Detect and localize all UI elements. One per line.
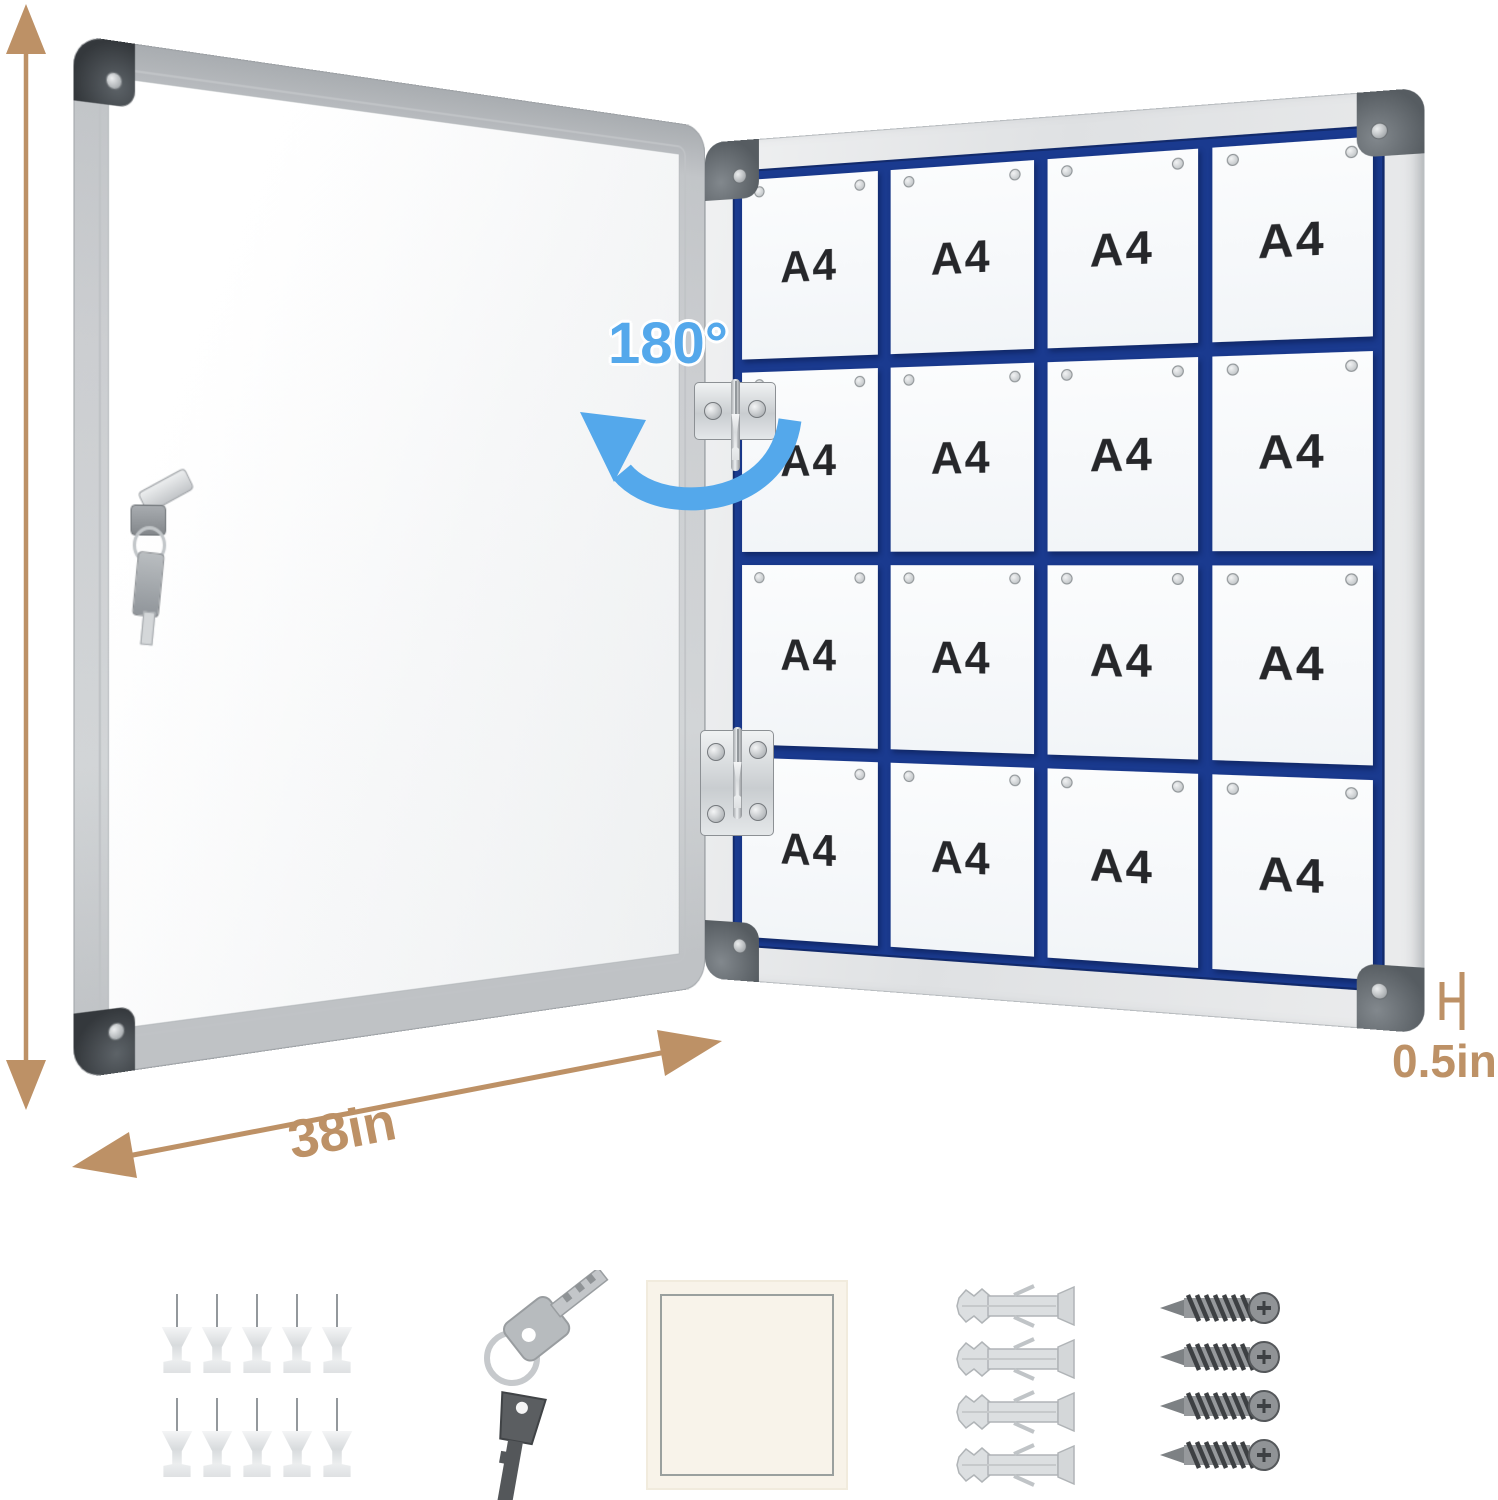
screw-icon <box>1371 982 1388 1000</box>
paper-pin-icon <box>1061 165 1073 178</box>
a4-label: A4 <box>1258 424 1326 481</box>
adhesive-pad <box>648 1282 846 1488</box>
a4-paper: A4 <box>890 763 1033 957</box>
paper-pin-icon <box>1172 157 1184 170</box>
a4-label: A4 <box>1090 838 1154 895</box>
adhesive-pad-inner <box>660 1294 834 1476</box>
paper-pin-icon <box>1061 776 1073 788</box>
a4-paper: A4 <box>742 565 878 749</box>
a4-grid: A4 A4 A4 A4 A4 A4 A4 A4 A4 A4 A4 A4 A4 A… <box>733 124 1385 992</box>
wall-anchor-icon <box>954 1443 1076 1487</box>
screw-icon <box>749 741 767 759</box>
key-tip <box>140 611 155 645</box>
paper-pin-icon <box>1009 573 1020 585</box>
a4-label: A4 <box>780 630 838 682</box>
wall-anchor-icon <box>954 1390 1076 1434</box>
paper-pin-icon <box>1061 369 1073 381</box>
paper-pin-icon <box>1227 573 1239 585</box>
screw-icon <box>733 168 747 184</box>
paper-pin-icon <box>903 176 914 188</box>
push-pin-icon <box>320 1396 354 1488</box>
paper-pin-icon <box>1172 573 1184 585</box>
paper-pin-icon <box>1172 780 1184 792</box>
a4-label: A4 <box>931 432 992 485</box>
screw-icon <box>106 71 123 91</box>
a4-paper: A4 <box>1213 136 1373 342</box>
paper-pin-icon <box>1061 573 1073 585</box>
paper-pin-icon <box>903 770 914 782</box>
paper-pin-icon <box>854 179 865 191</box>
paper-pin-icon <box>854 572 865 583</box>
a4-paper: A4 <box>1047 357 1198 551</box>
paper-pin-icon <box>1009 774 1020 786</box>
push-pin-icon <box>160 1396 194 1488</box>
rotation-label: 180° <box>608 310 728 377</box>
a4-paper: A4 <box>742 171 878 360</box>
keys-icon <box>448 1270 613 1500</box>
corner-cap <box>705 139 759 201</box>
paper-pin-icon <box>1227 363 1239 375</box>
screw-icon <box>1158 1288 1286 1328</box>
depth-label: 0.5in <box>1392 1034 1497 1088</box>
key-icon <box>132 551 165 618</box>
a4-paper: A4 <box>1047 768 1198 968</box>
product-diagram: 38in A4 A4 A4 A4 A4 A4 A4 A4 A4 A4 A4 A4 <box>0 0 1498 1500</box>
push-pin-icon <box>160 1292 194 1384</box>
paper-pin-icon <box>854 769 865 781</box>
screw-icon <box>707 805 725 823</box>
a4-paper: A4 <box>890 363 1033 552</box>
hinge-bottom <box>700 730 774 836</box>
screw-icon <box>1158 1435 1286 1475</box>
paper-pin-icon <box>1227 783 1239 796</box>
push-pin-icon <box>200 1396 234 1488</box>
a4-paper: A4 <box>1213 351 1373 551</box>
paper-pin-icon <box>1345 359 1358 372</box>
push-pins-group <box>160 1292 360 1492</box>
push-pin-icon <box>240 1292 274 1384</box>
rotation-arrow-icon <box>572 382 804 537</box>
screws-group <box>1158 1288 1286 1484</box>
a4-label: A4 <box>780 824 838 878</box>
wall-anchor-icon <box>954 1337 1076 1381</box>
a4-paper: A4 <box>1213 774 1373 980</box>
corner-cap <box>73 1006 135 1079</box>
a4-paper: A4 <box>1213 565 1373 765</box>
paper-pin-icon <box>1172 365 1184 377</box>
a4-label: A4 <box>1258 636 1326 693</box>
screw-icon <box>707 743 725 761</box>
paper-pin-icon <box>754 572 764 583</box>
a4-label: A4 <box>1090 428 1154 483</box>
corner-cap <box>73 35 135 108</box>
corner-cap <box>1357 963 1425 1033</box>
screw-icon <box>1158 1386 1286 1426</box>
a4-label: A4 <box>931 831 992 887</box>
paper-pin-icon <box>854 376 865 388</box>
corner-cap <box>705 920 759 982</box>
screw-icon <box>1158 1337 1286 1377</box>
hinge-pin <box>733 727 742 819</box>
push-pin-icon <box>200 1292 234 1384</box>
paper-pin-icon <box>903 374 914 386</box>
screw-icon <box>749 803 767 821</box>
paper-pin-icon <box>1227 153 1239 166</box>
a4-paper: A4 <box>890 160 1033 354</box>
push-pin-icon <box>320 1292 354 1384</box>
a4-label: A4 <box>780 239 838 293</box>
screw-icon <box>1371 122 1388 140</box>
push-pin-icon <box>280 1292 314 1384</box>
a4-paper: A4 <box>1047 565 1198 759</box>
screw-icon <box>733 938 747 954</box>
a4-paper: A4 <box>1047 149 1198 349</box>
a4-label: A4 <box>1258 846 1326 905</box>
corner-cap <box>1357 88 1425 158</box>
push-pin-icon <box>280 1396 314 1488</box>
cabinet-door <box>73 35 705 1080</box>
a4-label: A4 <box>931 632 992 685</box>
bulletin-board: A4 A4 A4 A4 A4 A4 A4 A4 A4 A4 A4 A4 A4 A… <box>705 88 1424 1034</box>
paper-pin-icon <box>1009 371 1020 383</box>
a4-paper: A4 <box>890 565 1033 754</box>
push-pin-icon <box>240 1396 274 1488</box>
a4-label: A4 <box>1090 634 1154 689</box>
door-lock <box>124 471 201 651</box>
paper-pin-icon <box>903 572 914 583</box>
wall-anchors-group <box>954 1284 1076 1496</box>
push-pin-row <box>160 1292 354 1384</box>
paper-pin-icon <box>1345 573 1358 585</box>
a4-label: A4 <box>931 230 992 286</box>
paper-pin-icon <box>1345 787 1358 800</box>
wall-anchor-icon <box>954 1284 1076 1328</box>
paper-pin-icon <box>1345 145 1358 158</box>
depth-dimension-marker <box>1436 966 1468 1034</box>
height-dimension-arrow <box>2 2 50 1112</box>
push-pin-row <box>160 1396 354 1488</box>
paper-pin-icon <box>1009 168 1020 180</box>
a4-label: A4 <box>1258 211 1326 270</box>
a4-label: A4 <box>1090 221 1154 278</box>
screw-icon <box>108 1021 125 1041</box>
